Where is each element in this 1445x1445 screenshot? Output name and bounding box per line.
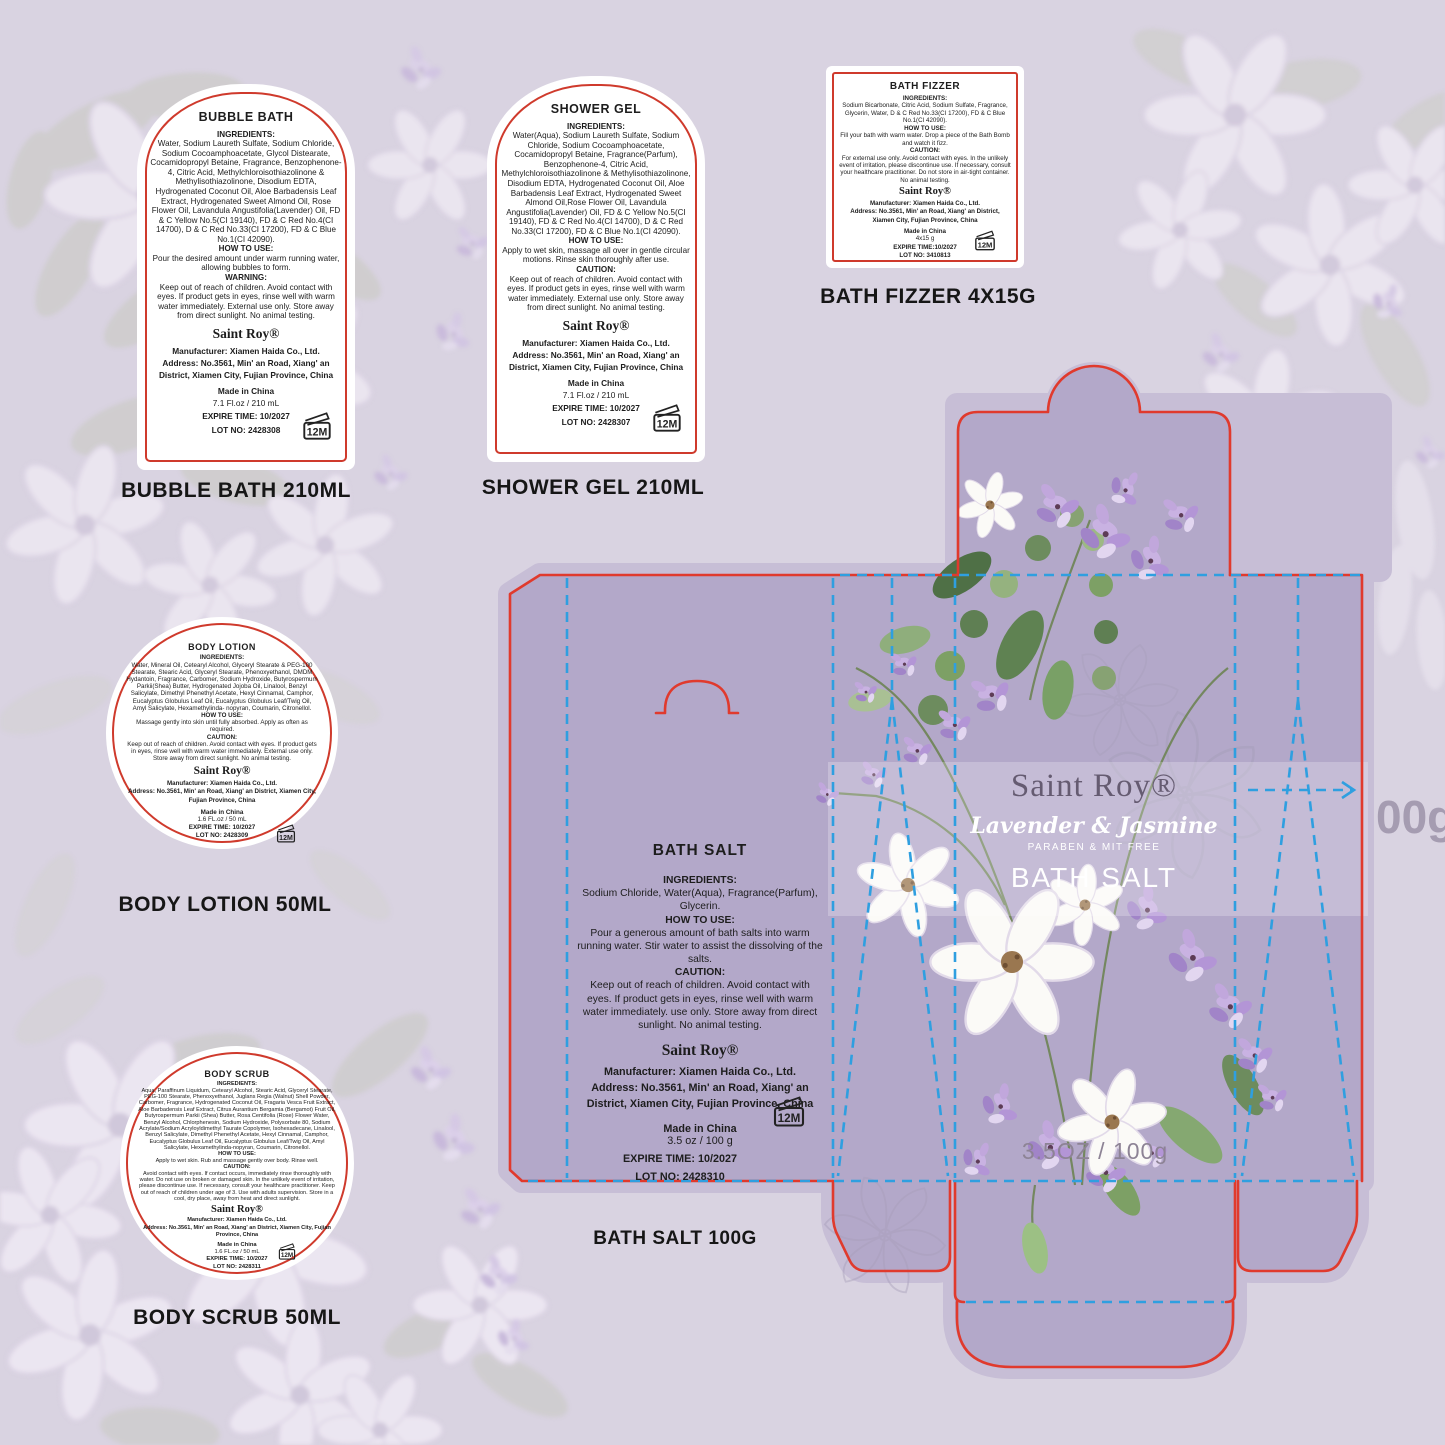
manufacturer-line: Manufacturer: Xiamen Haida Co., Ltd.	[577, 1064, 823, 1080]
net-volume: 7.1 Fl.oz / 210 mL	[150, 399, 342, 409]
how-to-use-section: HOW TO USE: Massage gently into skin unt…	[126, 712, 318, 734]
body-scrub-label: BODY SCRUB INGREDIENTS: Aqua, Paraffinum…	[120, 1046, 354, 1280]
body-scrub-caption: BODY SCRUB 50ML	[133, 1306, 341, 1330]
address-line: Address: No.3561, Min' an Road, Xiang' a…	[126, 788, 318, 805]
shower-gel-caption: SHOWER GEL 210ML	[482, 476, 704, 500]
made-in-line: Made in China	[500, 379, 692, 389]
shower-gel-label: SHOWER GEL INGREDIENTS: Water(Aqua), Sod…	[487, 76, 705, 462]
manufacturer-line: Manufacturer: Xiamen Haida Co., Ltd.	[500, 337, 692, 349]
brand-name: Saint Roy®	[500, 318, 692, 334]
how-to-use-section: HOW TO USE: Pour the desired amount unde…	[150, 244, 342, 273]
address-line: Address: No.3561, Min' an Road, Xiang' a…	[137, 1225, 337, 1240]
address-line: Address: No.3561, Min' an Road, Xiang' a…	[839, 208, 1011, 225]
expire-line: EXPIRE TIME: 10/2027	[577, 1153, 783, 1165]
caution-section: CAUTION: For external use only. Avoid co…	[839, 147, 1011, 184]
floral-cluster-top-right	[1093, 16, 1445, 691]
scent-name: Lavender & Jasmine	[955, 813, 1233, 839]
ingredients-section: INGREDIENTS: Water, Mineral Oil, Ceteary…	[126, 654, 318, 712]
brand-name: Saint Roy®	[577, 1042, 823, 1060]
svg-text:12M: 12M	[307, 427, 328, 439]
thumb-notch-arc	[656, 681, 738, 713]
how-to-use-section: HOW TO USE: Apply to wet skin, massage a…	[500, 236, 692, 265]
label-title: BUBBLE BATH	[150, 110, 342, 125]
period-after-opening-icon: 12M	[274, 823, 298, 844]
body-lotion-caption: BODY LOTION 50ML	[119, 893, 332, 917]
ingredients-section: INGREDIENTS: Sodium Bicarbonate, Citric …	[839, 95, 1011, 125]
caution-section: CAUTION: Keep out of reach of children. …	[500, 265, 692, 313]
panel-title: BATH SALT	[577, 842, 823, 860]
bath-fizzer-caption: BATH FIZZER 4X15G	[820, 285, 1036, 309]
manufacturer-line: Manufacturer: Xiamen Haida Co., Ltd.	[126, 780, 318, 789]
svg-text:12M: 12M	[281, 1252, 293, 1259]
outline-flower-sketches	[815, 624, 1260, 1308]
how-to-use-section: HOW TO USE: Pour a generous amount of ba…	[577, 914, 823, 967]
period-after-opening-icon: 12M	[299, 410, 335, 442]
brand-name: Saint Roy®	[126, 765, 318, 778]
made-in-line: Made in China	[150, 387, 342, 397]
caution-section: CAUTION: Keep out of reach of children. …	[577, 966, 823, 1032]
front-net-weight: 3.5OZ / 100g	[1022, 1138, 1168, 1165]
ingredients-section: INGREDIENTS: Water, Sodium Laureth Sulfa…	[150, 130, 342, 245]
label-title: BODY SCRUB	[137, 1069, 337, 1079]
brand-logotype: Saint Roy®	[955, 768, 1233, 805]
expire-line: EXPIRE TIME: 10/2027	[137, 1256, 337, 1263]
bubble-bath-label: BUBBLE BATH INGREDIENTS: Water, Sodium L…	[137, 84, 355, 470]
address-line: Address: No.3561, Min' an Road, Xiang' a…	[500, 349, 692, 374]
period-after-opening-icon: 12M	[972, 229, 998, 252]
lot-line: LOT NO: 3410813	[839, 252, 1011, 259]
period-after-opening-icon: 12M	[649, 402, 685, 434]
brand-name: Saint Roy®	[839, 186, 1011, 199]
bath-salt-front-branding: Saint Roy® Lavender & Jasmine PARABEN & …	[955, 764, 1233, 894]
how-to-use-section: HOW TO USE: Apply to wet skin. Rub and m…	[137, 1151, 337, 1164]
made-in-line: Made in China	[137, 1242, 337, 1249]
ingredients-section: INGREDIENTS: Water(Aqua), Sodium Laureth…	[500, 122, 692, 237]
ingredients-section: INGREDIENTS: Aqua, Paraffinum Liquidum, …	[137, 1081, 337, 1151]
caution-section: CAUTION: Keep out of reach of children. …	[126, 734, 318, 763]
svg-text:12M: 12M	[978, 240, 993, 249]
caution-section: CAUTION: Avoid contact with eyes. If con…	[137, 1164, 337, 1202]
how-to-use-section: HOW TO USE: Fill your bath with warm wat…	[839, 125, 1011, 147]
ingredients-section: INGREDIENTS: Sodium Chloride, Water(Aqua…	[577, 874, 823, 914]
cropped-weight-text: 00g	[1376, 790, 1445, 844]
svg-text:12M: 12M	[778, 1112, 801, 1125]
free-from-claim: PARABEN & MIT FREE	[955, 842, 1233, 853]
svg-text:12M: 12M	[279, 835, 293, 842]
bath-salt-caption: BATH SALT 100G	[593, 1228, 757, 1250]
lot-line: LOT NO: 2428310	[577, 1171, 783, 1183]
manufacturer-line: Manufacturer: Xiamen Haida Co., Ltd.	[137, 1217, 337, 1225]
address-line: Address: No.3561, Min' an Road, Xiang' a…	[150, 357, 342, 382]
net-volume: 7.1 Fl.oz / 210 mL	[500, 391, 692, 401]
svg-text:12M: 12M	[657, 419, 678, 431]
brand-name: Saint Roy®	[150, 326, 342, 342]
label-content: BODY LOTION INGREDIENTS: Water, Mineral …	[106, 642, 338, 840]
brand-name: Saint Roy®	[137, 1204, 337, 1216]
label-content: SHOWER GEL INGREDIENTS: Water(Aqua), Sod…	[487, 102, 705, 428]
bath-salt-back-panel: BATH SALT INGREDIENTS: Sodium Chloride, …	[577, 842, 823, 1183]
warning-section: WARNING: Keep out of reach of children. …	[150, 273, 342, 321]
label-content: BUBBLE BATH INGREDIENTS: Water, Sodium L…	[137, 110, 355, 436]
label-content: BODY SCRUB INGREDIENTS: Aqua, Paraffinum…	[120, 1069, 354, 1270]
lot-line: LOT NO: 2428311	[137, 1264, 337, 1271]
manufacturer-line: Manufacturer: Xiamen Haida Co., Ltd.	[839, 200, 1011, 208]
period-after-opening-icon: 12M	[769, 1094, 809, 1129]
body-lotion-label: BODY LOTION INGREDIENTS: Water, Mineral …	[106, 617, 338, 849]
period-after-opening-icon: 12M	[276, 1242, 298, 1261]
made-in-line: Made in China	[126, 809, 318, 816]
label-title: BATH FIZZER	[839, 81, 1011, 93]
label-title: BODY LOTION	[126, 642, 318, 652]
label-title: SHOWER GEL	[500, 102, 692, 117]
manufacturer-line: Manufacturer: Xiamen Haida Co., Ltd.	[150, 345, 342, 357]
bath-fizzer-label: BATH FIZZER INGREDIENTS: Sodium Bicarbon…	[826, 66, 1024, 268]
net-volume: 1.6 FL.oz / 50 mL	[137, 1249, 337, 1256]
net-weight: 3.5 oz / 100 g	[577, 1135, 823, 1147]
bubble-bath-caption: BUBBLE BATH 210ML	[121, 479, 351, 503]
product-name: BATH SALT	[955, 862, 1233, 894]
